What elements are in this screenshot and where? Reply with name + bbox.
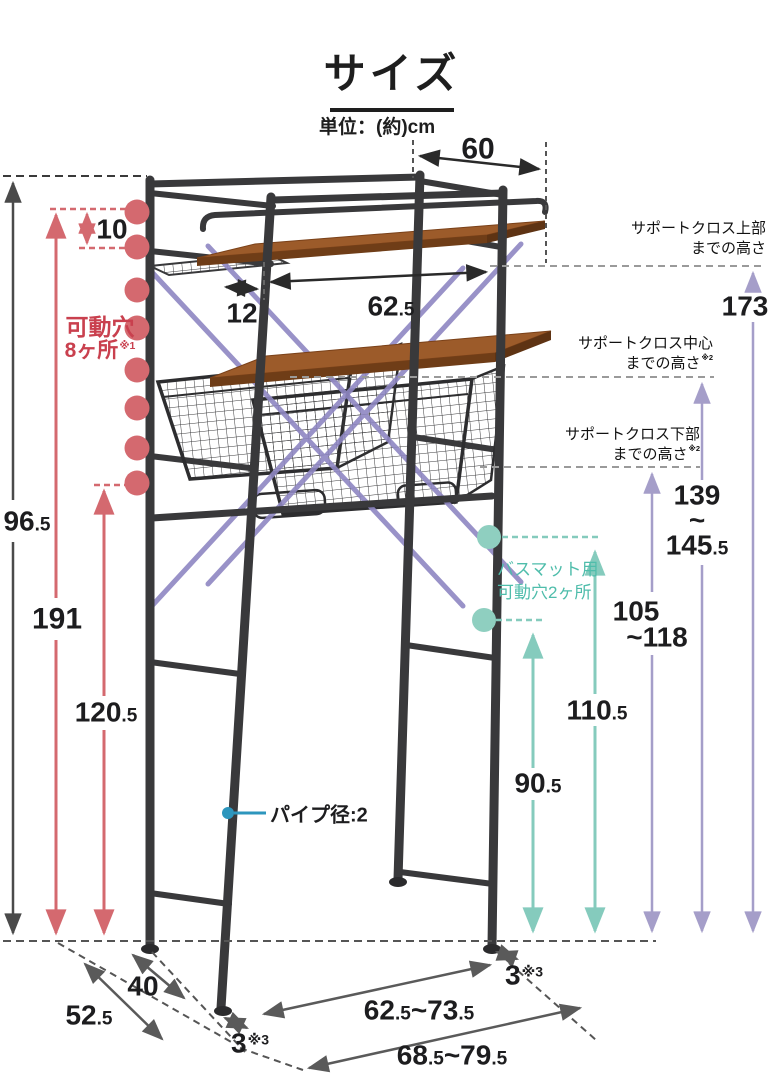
dim-top-width: 60 [461, 133, 494, 165]
support-mid-note: サポートクロス中心 までの高さ※2 [555, 334, 713, 375]
dim-support-mid: 139 ~ 145.5 [666, 483, 729, 562]
support-low-note: サポートクロス下部 までの高さ※2 [542, 425, 700, 466]
dim-support-low-b: ~118 [626, 622, 688, 651]
dim-depth-outer: 52.5 [65, 1000, 112, 1029]
dim-width-outer: 68.5~79.5 [397, 1040, 507, 1069]
dim-total-height: 191 [32, 603, 82, 635]
movable-holes-note: 可動穴 8ヶ所※1 [65, 316, 136, 366]
dim-width-inner: 62.5~73.5 [364, 995, 474, 1024]
dim-offset: 12 [226, 298, 257, 327]
size-diagram: サイズ 単位：(約)cm 60 12 62.5 10 96.5 191 120.… [0, 0, 769, 1080]
page-header: サイズ [310, 40, 474, 112]
dim-gap: 10 [96, 214, 127, 243]
rack-illustration [0, 0, 769, 1080]
dim-outer-height: 96.5 [3, 506, 50, 535]
pipe-note: パイプ径:2 [270, 799, 368, 828]
dim-foot-right: 3※3 [505, 960, 543, 989]
pipe-callout [222, 807, 266, 819]
dim-bath-lower: 90.5 [514, 768, 561, 797]
dim-bath-upper: 110.5 [566, 695, 627, 724]
unit-note: 単位：(約)cm [319, 112, 435, 139]
page-title: サイズ [310, 40, 474, 101]
dim-depth-inner: 40 [127, 971, 158, 1000]
bathmat-note: バスマット用 可動穴2ヶ所 [497, 559, 599, 605]
dim-lower-height: 120.5 [75, 697, 138, 726]
support-top-note: サポートクロス上部 までの高さ [600, 219, 766, 260]
bathmat-hole-dot [477, 525, 501, 549]
bathmat-hole-dot [472, 608, 496, 632]
dim-shelf-width: 62.5 [367, 291, 414, 320]
dim-support-top: 173 [722, 291, 769, 320]
dim-foot-left: 3※3 [231, 1028, 269, 1057]
